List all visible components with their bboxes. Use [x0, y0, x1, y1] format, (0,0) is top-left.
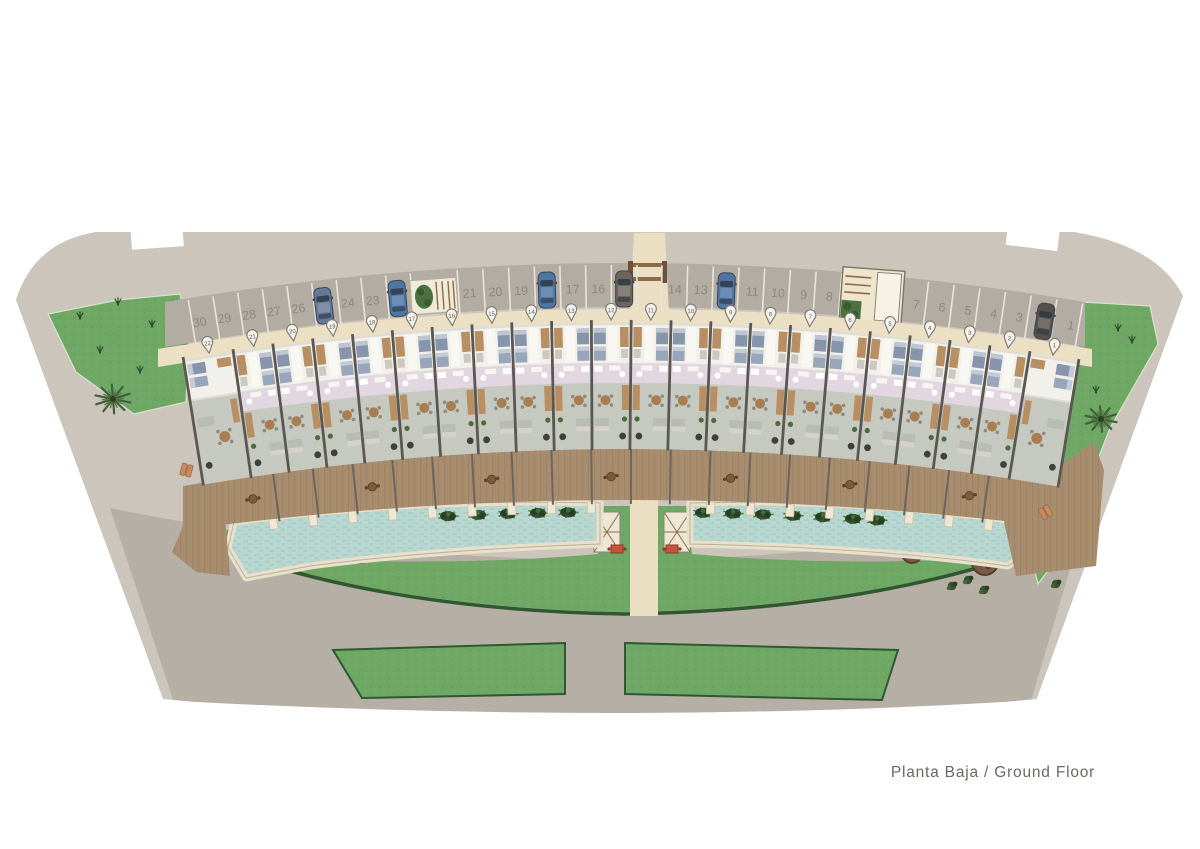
parking-stall-number: 30: [192, 314, 208, 330]
green-wedge-right: [625, 643, 898, 700]
parking-stall-number: 27: [266, 304, 282, 320]
unit: [590, 320, 632, 450]
pool-jetty: [348, 510, 357, 523]
unit-marker-number: 11: [648, 308, 655, 314]
unit-marker-number: 18: [369, 320, 377, 327]
unit-marker-number: 10: [687, 309, 694, 315]
parking-stall-number: 11: [745, 285, 759, 300]
unit: [629, 320, 671, 450]
parking-stall-number: 23: [365, 293, 380, 308]
parking-stall-number: 29: [216, 311, 232, 327]
parking-stall-number: 10: [771, 286, 786, 301]
stall-divider: [687, 266, 688, 310]
unit-marker-number: 12: [608, 308, 615, 314]
parking-stall-number: 24: [340, 295, 355, 310]
unit-marker-number: 17: [408, 317, 416, 324]
car-top-view-icon: [614, 271, 635, 307]
car-top-view-icon: [715, 273, 737, 310]
stall-divider: [661, 265, 662, 309]
parking-stall-number: 19: [514, 284, 528, 299]
unit-marker-number: 14: [528, 310, 536, 316]
stall-divider: [586, 265, 587, 309]
parking-stall-number: 8: [825, 289, 833, 304]
parking-stall-number: 26: [291, 301, 307, 317]
pool-jetty: [984, 518, 994, 531]
unit-marker-number: 13: [568, 309, 575, 315]
parking-stall-number: 14: [668, 282, 682, 296]
party-wall-pier: [591, 447, 592, 504]
party-wall-pier: [670, 447, 671, 504]
unit: [550, 320, 594, 451]
parking-stall-number: 20: [488, 285, 503, 300]
stall-divider: [560, 266, 561, 310]
unit-marker-number: 16: [448, 314, 456, 320]
pool-jetty: [865, 509, 874, 522]
floor-plan-page: 3029282726252423222120191817161514131211…: [0, 0, 1200, 849]
unit: [510, 321, 556, 452]
unit-marker-number: 15: [488, 311, 496, 317]
green-wedge-left: [333, 643, 565, 698]
parking-stall-number: 21: [462, 286, 477, 301]
parking-stall-number: 13: [694, 283, 708, 297]
parking-stall-number: 9: [800, 288, 808, 302]
site-plan: 3029282726252423222120191817161514131211…: [0, 0, 1200, 849]
pool-jetty: [905, 511, 914, 524]
pool-jetty: [547, 502, 555, 514]
road-notch-left: [130, 220, 184, 250]
pool-jetty: [706, 502, 714, 514]
parking-stall-number: 17: [566, 282, 580, 296]
parking-stall-number: 16: [591, 282, 605, 296]
parking-stall-number: 28: [241, 307, 257, 323]
pool-jetty: [944, 514, 953, 527]
unit: [666, 320, 710, 451]
unit: [470, 322, 518, 454]
plan-title: Planta Baja / Ground Floor: [891, 764, 1095, 781]
car-top-view-icon: [536, 272, 558, 309]
